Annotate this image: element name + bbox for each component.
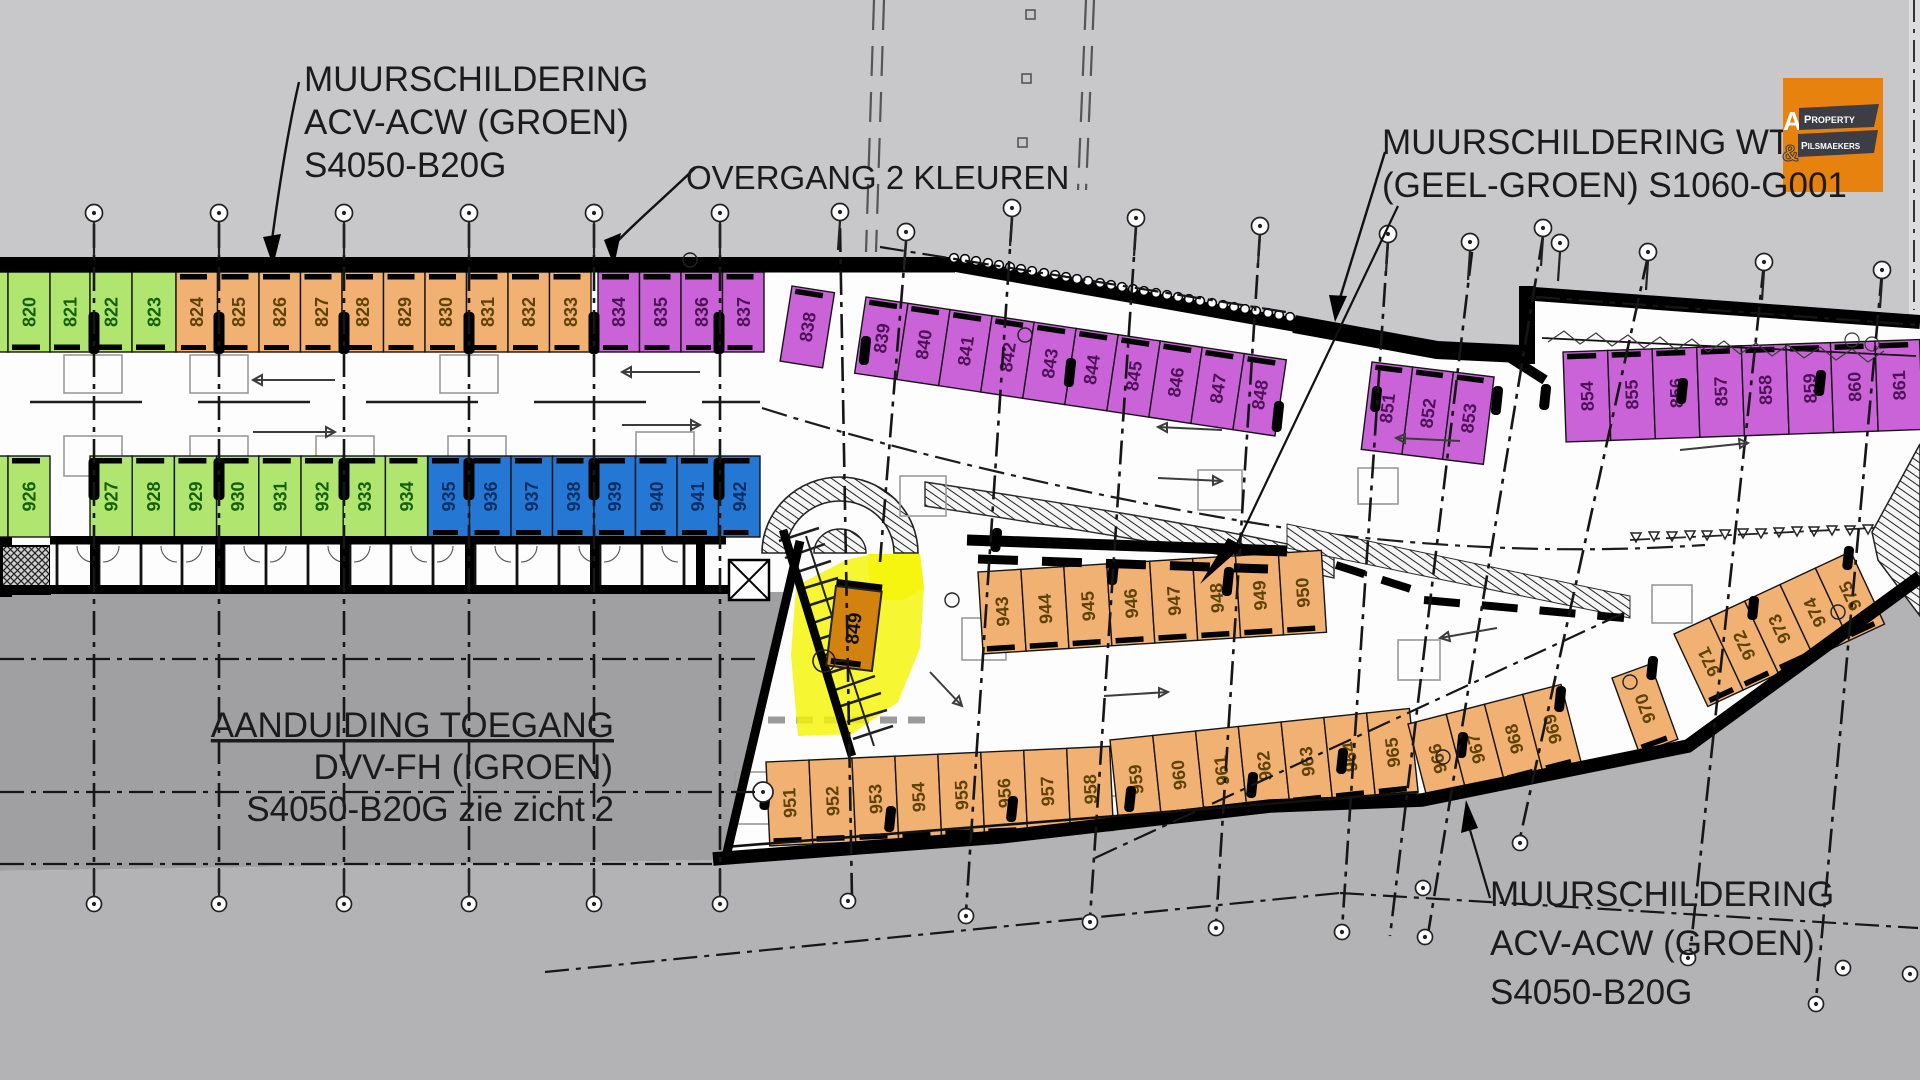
svg-text:MUURSCHILDERING: MUURSCHILDERING bbox=[1490, 875, 1834, 914]
svg-text:834: 834 bbox=[609, 297, 629, 327]
svg-text:ACV-ACW (GROEN): ACV-ACW (GROEN) bbox=[304, 103, 629, 142]
svg-text:941: 941 bbox=[688, 481, 708, 511]
svg-text:963: 963 bbox=[1296, 746, 1319, 778]
svg-text:825: 825 bbox=[229, 297, 249, 327]
svg-text:932: 932 bbox=[313, 481, 333, 511]
svg-text:835: 835 bbox=[651, 297, 671, 327]
svg-text:926: 926 bbox=[20, 481, 40, 511]
svg-text:957: 957 bbox=[1037, 776, 1058, 807]
svg-text:820: 820 bbox=[20, 297, 40, 327]
svg-text:827: 827 bbox=[312, 297, 332, 327]
svg-text:928: 928 bbox=[144, 481, 164, 511]
svg-text:952: 952 bbox=[822, 786, 843, 817]
svg-text:938: 938 bbox=[564, 481, 584, 511]
svg-text:854: 854 bbox=[1577, 381, 1598, 412]
svg-text:837: 837 bbox=[734, 297, 754, 327]
svg-text:PILSMAEKERS: PILSMAEKERS bbox=[1801, 141, 1861, 152]
svg-text:949: 949 bbox=[1249, 580, 1271, 611]
svg-text:832: 832 bbox=[519, 297, 539, 327]
svg-text:929: 929 bbox=[186, 481, 206, 511]
svg-text:833: 833 bbox=[561, 297, 581, 327]
svg-text:965: 965 bbox=[1381, 737, 1404, 769]
svg-text:822: 822 bbox=[102, 297, 122, 327]
svg-text:852: 852 bbox=[1416, 397, 1440, 429]
svg-text:PROPERTY: PROPERTY bbox=[1804, 114, 1855, 126]
svg-text:S4050-B20G: S4050-B20G bbox=[304, 146, 506, 185]
svg-text:934: 934 bbox=[397, 481, 417, 511]
svg-text:830: 830 bbox=[436, 297, 456, 327]
svg-text:OVERGANG 2 KLEUREN: OVERGANG 2 KLEUREN bbox=[686, 159, 1069, 196]
svg-text:ACV-ACW (GROEN): ACV-ACW (GROEN) bbox=[1490, 924, 1815, 963]
svg-text:946: 946 bbox=[1120, 588, 1142, 619]
svg-text:858: 858 bbox=[1755, 375, 1776, 406]
svg-text:953: 953 bbox=[865, 784, 886, 815]
svg-text:853: 853 bbox=[1457, 402, 1481, 434]
svg-text:S4050-B20G zie zicht 2: S4050-B20G zie zicht 2 bbox=[246, 790, 614, 829]
svg-text:(GEEL-GROEN) S1060-G001: (GEEL-GROEN) S1060-G001 bbox=[1382, 166, 1847, 205]
svg-text:857: 857 bbox=[1711, 376, 1732, 407]
svg-text:DVV-FH (IGROEN): DVV-FH (IGROEN) bbox=[314, 748, 613, 787]
svg-text:821: 821 bbox=[61, 297, 81, 327]
svg-text:831: 831 bbox=[478, 297, 498, 327]
svg-text:960: 960 bbox=[1168, 759, 1191, 791]
svg-text:935: 935 bbox=[439, 481, 459, 511]
svg-text:927: 927 bbox=[102, 481, 122, 511]
svg-text:937: 937 bbox=[522, 481, 542, 511]
svg-text:826: 826 bbox=[270, 297, 290, 327]
svg-text:943: 943 bbox=[992, 596, 1014, 627]
svg-text:940: 940 bbox=[647, 481, 667, 511]
svg-text:950: 950 bbox=[1292, 577, 1314, 608]
svg-text:936: 936 bbox=[481, 481, 501, 511]
svg-text:824: 824 bbox=[187, 297, 207, 327]
svg-text:AANDUIDING TOEGANG: AANDUIDING TOEGANG bbox=[211, 706, 614, 745]
svg-text:S4050-B20G: S4050-B20G bbox=[1490, 973, 1692, 1012]
svg-text:860: 860 bbox=[1844, 371, 1865, 402]
svg-text:829: 829 bbox=[395, 297, 415, 327]
svg-text:MUURSCHILDERING WT: MUURSCHILDERING WT bbox=[1382, 123, 1790, 162]
svg-text:861: 861 bbox=[1889, 370, 1910, 401]
svg-text:933: 933 bbox=[355, 481, 375, 511]
svg-text:&: & bbox=[1782, 140, 1799, 166]
svg-text:954: 954 bbox=[908, 782, 929, 813]
svg-text:939: 939 bbox=[605, 481, 625, 511]
svg-text:944: 944 bbox=[1035, 593, 1057, 624]
svg-text:836: 836 bbox=[692, 297, 712, 327]
svg-text:955: 955 bbox=[951, 780, 972, 811]
svg-text:823: 823 bbox=[145, 297, 165, 327]
svg-text:855: 855 bbox=[1621, 379, 1642, 410]
svg-text:931: 931 bbox=[270, 481, 290, 511]
svg-text:945: 945 bbox=[1077, 591, 1099, 622]
svg-text:947: 947 bbox=[1163, 585, 1185, 616]
svg-text:828: 828 bbox=[353, 297, 373, 327]
svg-text:930: 930 bbox=[228, 481, 248, 511]
svg-text:961: 961 bbox=[1210, 754, 1233, 786]
svg-text:MUURSCHILDERING: MUURSCHILDERING bbox=[304, 60, 648, 99]
svg-text:951: 951 bbox=[779, 787, 800, 818]
svg-text:942: 942 bbox=[730, 481, 750, 511]
